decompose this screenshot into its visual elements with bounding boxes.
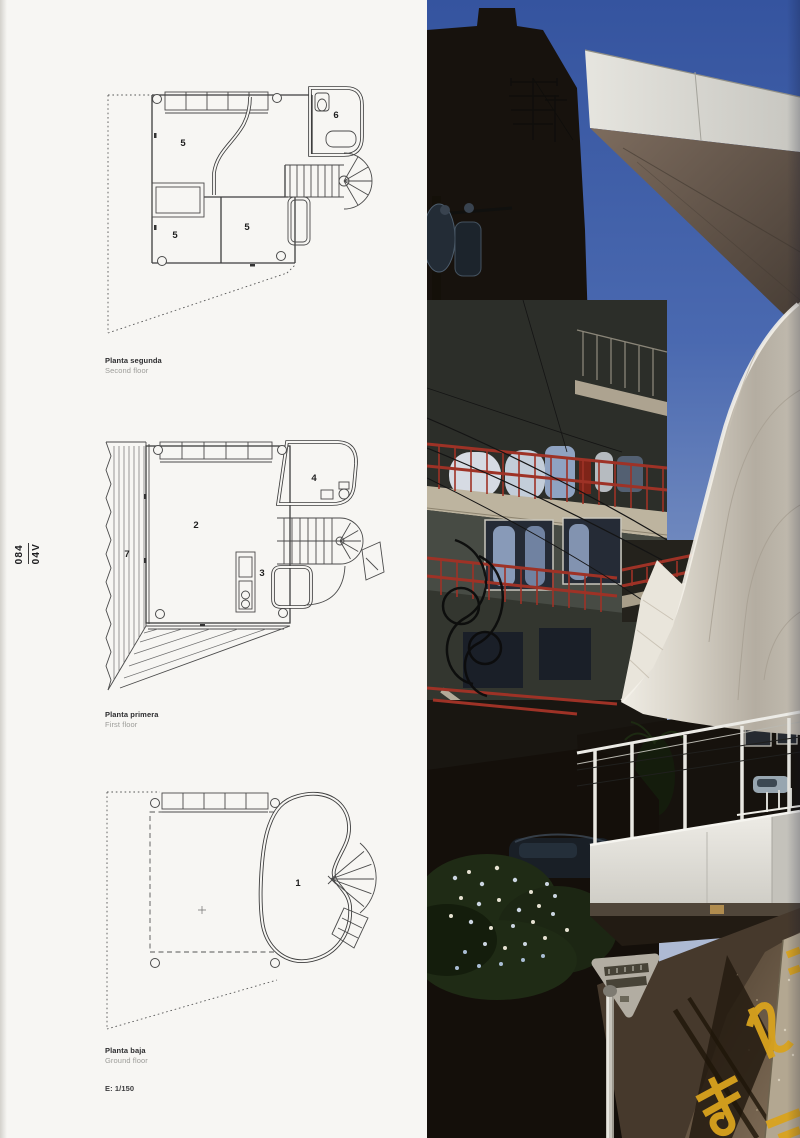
room-label: 5	[180, 138, 186, 149]
caption-english: First floor	[105, 720, 159, 730]
page-margin-tag: 084 04V	[15, 543, 42, 564]
closet-strip	[162, 793, 268, 812]
toilet-icon	[339, 489, 349, 499]
room-label: 1	[295, 878, 301, 889]
side-deck	[106, 442, 149, 690]
lit-patch	[710, 905, 724, 914]
curved-partition	[214, 97, 250, 195]
wall-ticks	[144, 494, 205, 627]
scale-note: E: 1/150	[105, 1084, 134, 1093]
spiral-stair	[285, 153, 372, 209]
room-label: 2	[193, 520, 198, 531]
canopy-flag	[362, 542, 384, 580]
plan-caption-ground-floor: Planta baja Ground floor	[105, 1046, 148, 1066]
entry-pod	[273, 566, 345, 607]
room-label: 6	[333, 110, 338, 121]
plan-caption-second-floor: Planta segunda Second floor	[105, 356, 162, 376]
mid-closet	[152, 183, 204, 217]
upper-floor-outline	[150, 812, 278, 952]
property-line-dotted	[107, 792, 277, 1029]
wall-ticks	[154, 133, 255, 267]
kitchen-counter	[236, 552, 255, 612]
page-gutter	[0, 0, 7, 1138]
street-photograph	[427, 0, 800, 1138]
floorplan-ground-floor: 1	[100, 782, 390, 1054]
caption-spanish: Planta primera	[105, 710, 159, 720]
page-edge-vignette	[787, 0, 800, 1138]
caption-english: Ground floor	[105, 1056, 148, 1066]
room-label: 3	[259, 568, 264, 579]
walls	[146, 446, 290, 623]
bottom-deck	[120, 626, 290, 688]
room-label: 5	[244, 222, 250, 233]
room-label: 5	[172, 230, 178, 241]
floorplan-second-floor: 5 6 5 5	[100, 85, 390, 355]
room-label: 4	[311, 473, 317, 484]
floorplan-first-floor: 2 3 4 7	[100, 438, 390, 710]
closet-strip	[160, 442, 272, 462]
columns	[154, 446, 288, 619]
sink-icon	[321, 490, 333, 499]
bathtub-icon	[326, 131, 356, 147]
caption-spanish: Planta baja	[105, 1046, 148, 1056]
bathroom	[310, 88, 362, 155]
studio-bean	[261, 794, 351, 961]
caption-spanish: Planta segunda	[105, 356, 162, 366]
book-page: 084 04V	[0, 0, 800, 1138]
balcony-nook	[288, 197, 310, 245]
property-line-dotted	[108, 95, 295, 333]
margin-divider	[28, 543, 29, 564]
plan-caption-first-floor: Planta primera First floor	[105, 710, 159, 730]
toilet-icon	[315, 93, 329, 111]
project-code: 04V	[32, 543, 42, 564]
room-label: 7	[124, 549, 129, 560]
page-number: 084	[15, 543, 25, 564]
wall-under-shadow	[590, 903, 800, 916]
caption-english: Second floor	[105, 366, 162, 376]
center-mark	[198, 906, 206, 914]
